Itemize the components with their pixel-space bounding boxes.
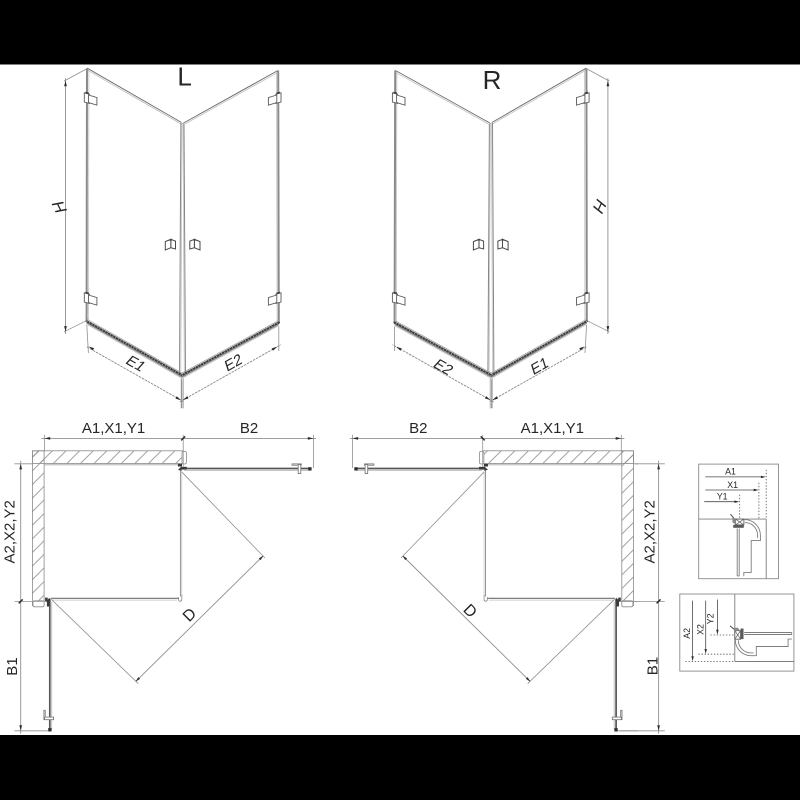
svg-text:X2: X2 (696, 624, 706, 635)
svg-text:A2: A2 (682, 628, 692, 639)
svg-text:L: L (177, 62, 191, 92)
svg-text:R: R (483, 65, 502, 95)
svg-text:A1,X1,Y1: A1,X1,Y1 (521, 420, 584, 437)
svg-text:B2: B2 (240, 420, 258, 437)
svg-text:B2: B2 (409, 420, 427, 437)
svg-text:A1,X1,Y1: A1,X1,Y1 (82, 420, 145, 437)
svg-text:Y1: Y1 (717, 492, 728, 502)
svg-text:A1: A1 (725, 467, 736, 477)
svg-text:Y2: Y2 (706, 613, 716, 624)
svg-text:B1: B1 (644, 657, 661, 675)
svg-text:X1: X1 (727, 480, 738, 490)
svg-text:B1: B1 (4, 657, 21, 675)
svg-text:A2,X2,Y2: A2,X2,Y2 (642, 500, 659, 563)
svg-text:A2,X2,Y2: A2,X2,Y2 (2, 500, 19, 563)
